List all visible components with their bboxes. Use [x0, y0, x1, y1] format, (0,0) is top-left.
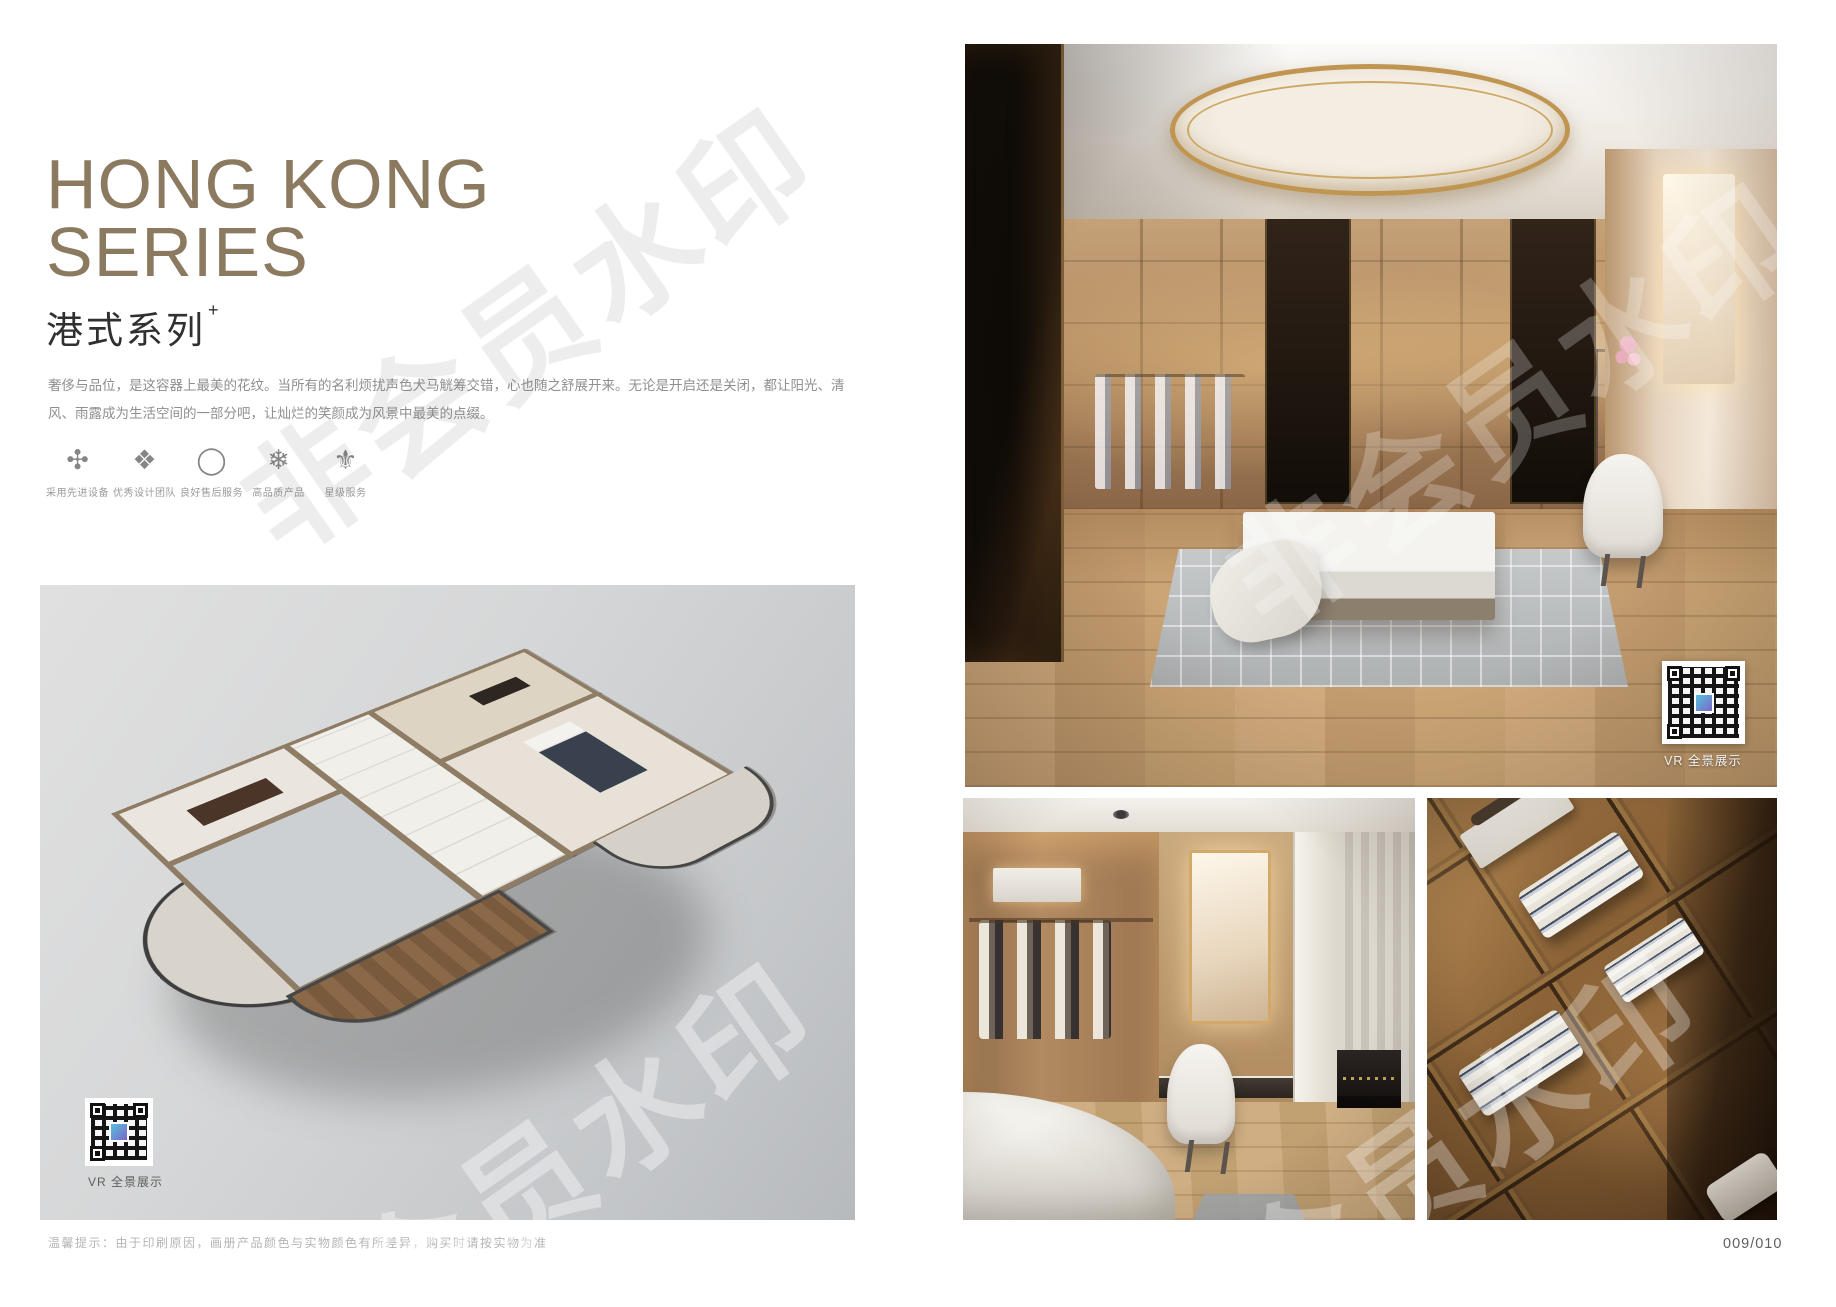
series-title-line2: SERIES: [46, 218, 491, 286]
feature-label: 采用先进设备: [44, 484, 111, 499]
qr-logo-icon: [109, 1122, 129, 1142]
feature-item: ❖ 优秀设计团队: [111, 444, 178, 499]
qr-finder: [1667, 724, 1682, 739]
quality-product-icon: ❄: [245, 444, 312, 480]
qr-finder: [1667, 666, 1682, 681]
photo-vignette: [963, 798, 1415, 1220]
description-line1: 奢侈与品位，是这容器上最美的花纹。当所有的名利烦扰声色犬马觥筹交错，心也随之舒展…: [48, 372, 698, 400]
qr-finder: [1725, 666, 1740, 681]
series-title-line1: HONG KONG: [46, 150, 491, 218]
series-title: HONG KONG SERIES: [46, 150, 491, 286]
qr-finder: [133, 1103, 148, 1118]
vr-qr-code: [1662, 661, 1745, 744]
vr-panorama-label: VR 全景展示: [1648, 750, 1758, 769]
feature-label: 星级服务: [312, 484, 379, 499]
feature-label: 高品质产品: [245, 484, 312, 499]
dressing-area-photo: [963, 798, 1415, 1220]
plus-mark: +: [208, 300, 222, 320]
feature-item: ⚜ 星级服务: [312, 444, 379, 499]
qr-finder: [90, 1103, 105, 1118]
photo-vignette: [965, 44, 1777, 787]
series-description: 奢侈与品位，是这容器上最美的花纹。当所有的名利烦扰声色犬马觥筹交错，心也随之舒展…: [48, 372, 698, 427]
catalog-page: HONG KONG SERIES 港式系列+ 奢侈与品位，是这容器上最美的花纹。…: [0, 0, 1836, 1307]
vr-panorama-label: VR 全景展示: [88, 1173, 163, 1190]
main-closet-photo: VR 全景展示: [965, 44, 1777, 787]
watermark-text: 非会员水印: [200, 59, 849, 589]
qr-finder: [90, 1146, 105, 1161]
feature-item: ◯ 良好售后服务: [178, 444, 245, 499]
page-number: 009/010: [1723, 1236, 1782, 1252]
star-service-icon: ⚜: [312, 444, 379, 480]
feature-label: 优秀设计团队: [111, 484, 178, 499]
feature-list: ✣ 采用先进设备 ❖ 优秀设计团队 ◯ 良好售后服务 ❄ 高品质产品 ⚜ 星级服…: [44, 444, 379, 499]
series-subtitle: 港式系列+: [46, 300, 220, 354]
photo-vignette: [1427, 798, 1777, 1220]
feature-item: ✣ 采用先进设备: [44, 444, 111, 499]
qr-logo-icon: [1694, 693, 1714, 713]
vr-qr-code: [85, 1098, 153, 1166]
floorplan-panel: VR 全景展示: [40, 585, 855, 1220]
shelf-closeup-photo: [1427, 798, 1777, 1220]
feature-label: 良好售后服务: [178, 484, 245, 499]
description-line2: 风、雨露成为生活空间的一部分吧，让灿烂的笑颜成为风景中最美的点缀。: [48, 400, 698, 428]
design-team-icon: ❖: [111, 444, 178, 480]
after-sales-service-icon: ◯: [178, 444, 245, 480]
feature-item: ❄ 高品质产品: [245, 444, 312, 499]
series-subtitle-text: 港式系列: [46, 310, 206, 351]
advanced-equipment-icon: ✣: [44, 444, 111, 480]
footer-disclaimer: 温馨提示：由于印刷原因，画册产品颜色与实物颜色有所差异，购买时请按实物为准: [48, 1234, 548, 1251]
